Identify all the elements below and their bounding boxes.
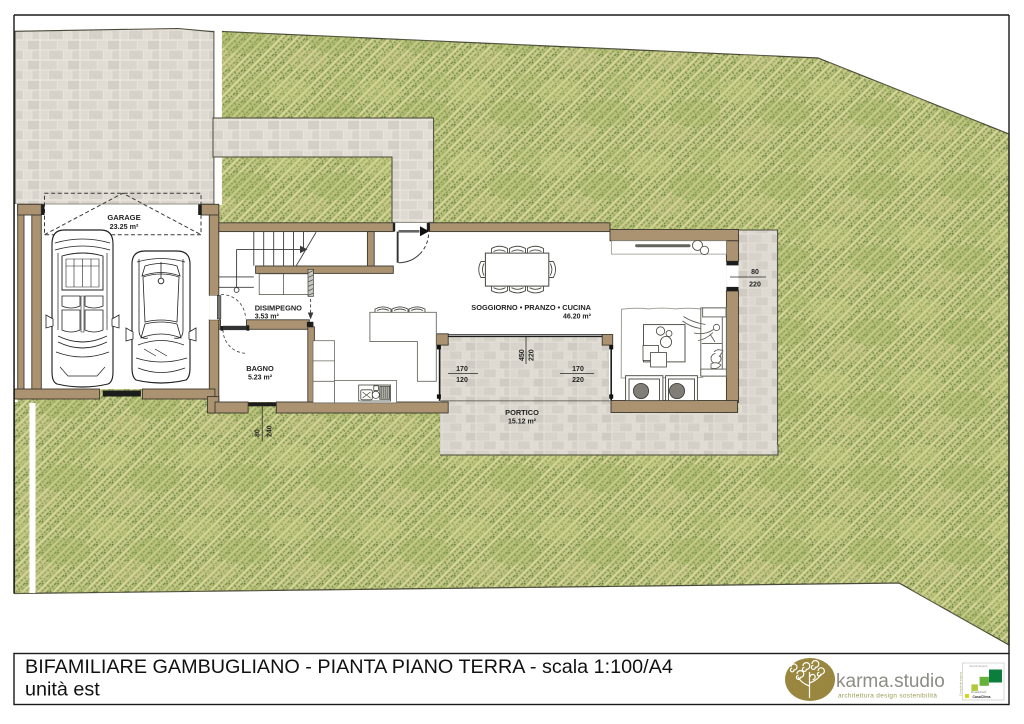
- svg-text:220: 220: [529, 349, 536, 361]
- svg-text:karma.studio: karma.studio: [836, 671, 945, 692]
- svg-text:DISIMPEGNO: DISIMPEGNO: [255, 304, 302, 313]
- svg-text:#CasaNova®: #CasaNova®: [971, 690, 987, 694]
- svg-text:15.12 m²: 15.12 m²: [508, 419, 537, 426]
- svg-text:unità est: unità est: [25, 679, 100, 701]
- svg-text:80: 80: [751, 269, 759, 276]
- svg-text:80: 80: [255, 429, 262, 437]
- svg-text:3.53 m²: 3.53 m²: [255, 313, 280, 320]
- svg-text:170: 170: [572, 366, 584, 373]
- svg-text:SOGGIORNO • PRANZO • CUCINA: SOGGIORNO • PRANZO • CUCINA: [471, 303, 591, 312]
- svg-text:170: 170: [456, 366, 468, 373]
- svg-text:PORTICO: PORTICO: [505, 408, 539, 417]
- svg-text:5.23 m²: 5.23 m²: [248, 375, 273, 382]
- svg-text:BIFAMILIARE GAMBUGLIANO - PIAN: BIFAMILIARE GAMBUGLIANO - PIANTA PIANO T…: [25, 656, 673, 678]
- svg-text:CasaClima: CasaClima: [973, 695, 991, 699]
- svg-text:450: 450: [519, 349, 526, 361]
- svg-text:220: 220: [572, 377, 584, 384]
- svg-text:architettura design sostenibil: architettura design sostenibilità: [838, 693, 937, 700]
- svg-text:GARAGE: GARAGE: [107, 213, 140, 222]
- svg-text:Servizi Esperti: Servizi Esperti: [970, 664, 988, 668]
- svg-text:120: 120: [456, 377, 468, 384]
- svg-text:BAGNO: BAGNO: [246, 364, 274, 373]
- svg-text:220: 220: [749, 282, 761, 289]
- svg-text:46.20 m²: 46.20 m²: [563, 314, 592, 321]
- svg-text:23.25 m²: 23.25 m²: [110, 222, 139, 231]
- svg-text:240: 240: [266, 425, 273, 437]
- svg-text:Consulente esperto: Consulente esperto: [959, 671, 963, 696]
